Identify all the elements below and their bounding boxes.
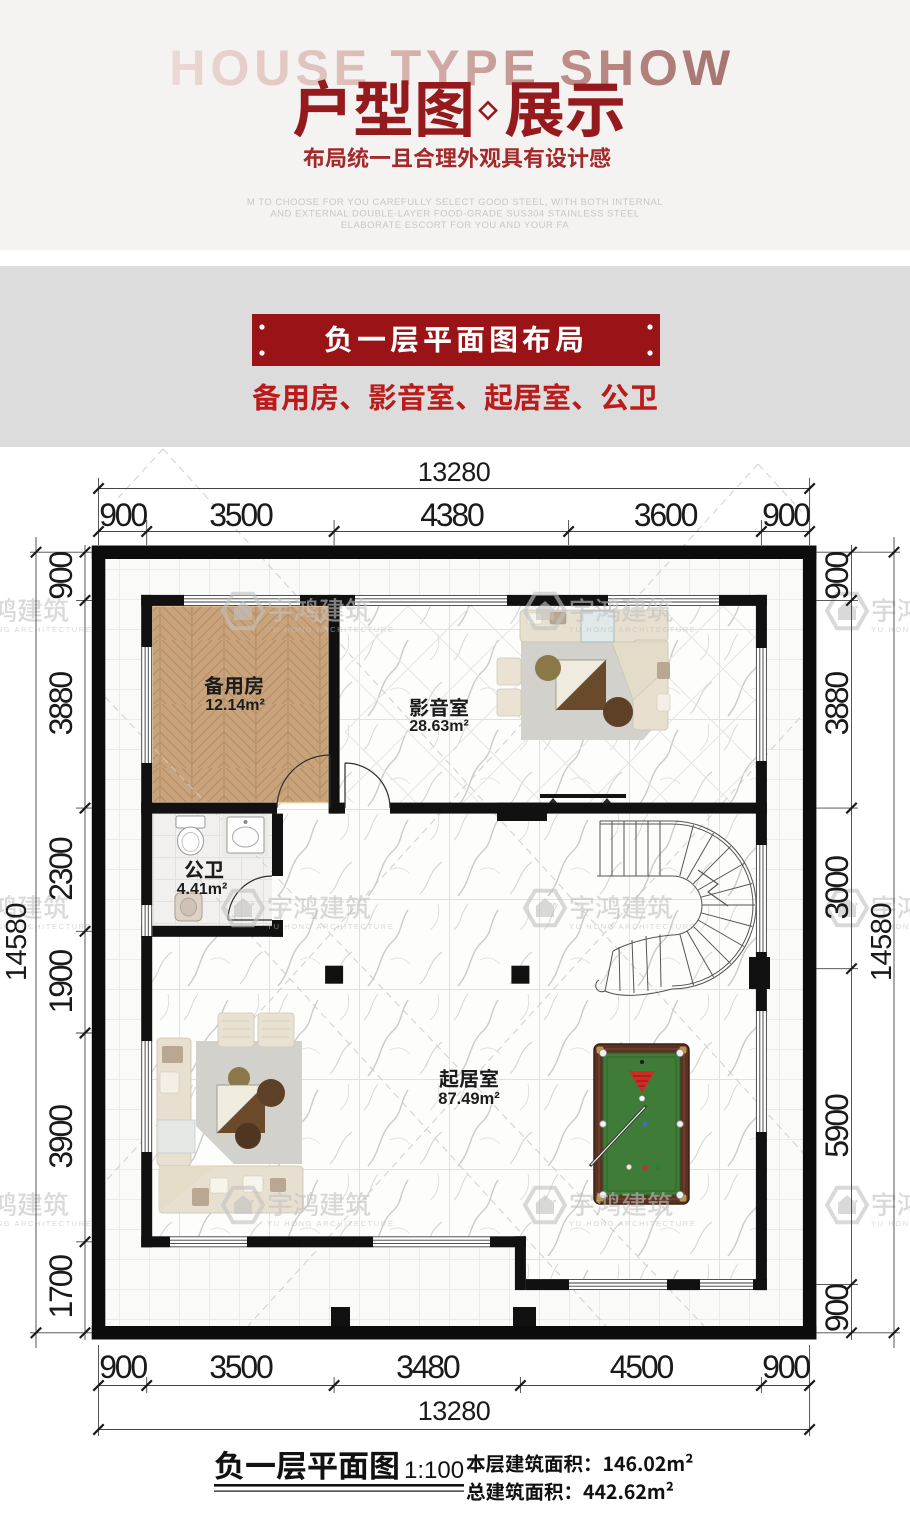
svg-text:900: 900 (99, 1349, 147, 1385)
svg-text:13280: 13280 (418, 457, 491, 487)
svg-text:13280: 13280 (418, 1396, 491, 1426)
svg-text:YU HONG ARCHITECTURE: YU HONG ARCHITECTURE (0, 625, 92, 634)
svg-text:900: 900 (99, 497, 147, 533)
svg-text:4380: 4380 (420, 497, 484, 533)
svg-text:3480: 3480 (396, 1349, 460, 1385)
svg-text:3880: 3880 (819, 672, 855, 736)
svg-text:5900: 5900 (819, 1094, 855, 1158)
svg-text:AND EXTERNAL DOUBLE-LAYER FOOD: AND EXTERNAL DOUBLE-LAYER FOOD-GRADE SUS… (270, 209, 639, 220)
svg-text:900: 900 (762, 497, 810, 533)
svg-text:12.14m²: 12.14m² (205, 697, 265, 714)
svg-text:ELABORATE ESCORT FOR YOU AND Y: ELABORATE ESCORT FOR YOU AND YOUR FA (341, 220, 569, 231)
svg-text:YU HONG ARCHITECTURE: YU HONG ARCHITECTURE (0, 1219, 92, 1228)
svg-text:1900: 1900 (43, 950, 79, 1014)
svg-text:900: 900 (819, 1284, 855, 1332)
svg-text:3900: 3900 (43, 1105, 79, 1169)
svg-text:900: 900 (819, 552, 855, 600)
svg-text:2300: 2300 (43, 837, 79, 901)
svg-text:3500: 3500 (209, 497, 273, 533)
svg-text:900: 900 (43, 552, 79, 600)
svg-text:YU HONG ARCHITECTURE: YU HONG ARCHITECTURE (267, 625, 394, 634)
svg-text:YU HONG ARCHITECTURE: YU HONG ARCHITECTURE (871, 625, 910, 634)
svg-text:14580: 14580 (1, 903, 33, 981)
svg-text:YU HONG ARCHITECTURE: YU HONG ARCHITECTURE (871, 1219, 910, 1228)
svg-text:YU HONG ARCHITECTURE: YU HONG ARCHITECTURE (267, 922, 394, 931)
svg-text:4500: 4500 (610, 1349, 674, 1385)
svg-text:3880: 3880 (43, 672, 79, 736)
svg-text:28.63m²: 28.63m² (409, 718, 469, 735)
svg-text:YU HONG ARCHITECTURE: YU HONG ARCHITECTURE (569, 1219, 696, 1228)
svg-text:3500: 3500 (209, 1349, 273, 1385)
svg-text:3000: 3000 (819, 856, 855, 920)
svg-text:1700: 1700 (43, 1255, 79, 1319)
svg-text:M TO CHOOSE FOR YOU CAREFULLY: M TO CHOOSE FOR YOU CAREFULLY SELECT GOO… (247, 197, 663, 208)
svg-text:14580: 14580 (866, 903, 898, 981)
svg-text:1:100: 1:100 (404, 1457, 464, 1484)
svg-text:YU HONG ARCHITECTURE: YU HONG ARCHITECTURE (267, 1219, 394, 1228)
svg-text:900: 900 (762, 1349, 810, 1385)
svg-text:4.41m²: 4.41m² (177, 881, 228, 898)
svg-text:YU HONG ARCHITECTURE: YU HONG ARCHITECTURE (569, 625, 696, 634)
svg-text:3600: 3600 (634, 497, 698, 533)
svg-text:87.49m²: 87.49m² (438, 1090, 500, 1108)
svg-text:YU HONG ARCHITECTURE: YU HONG ARCHITECTURE (569, 922, 696, 931)
